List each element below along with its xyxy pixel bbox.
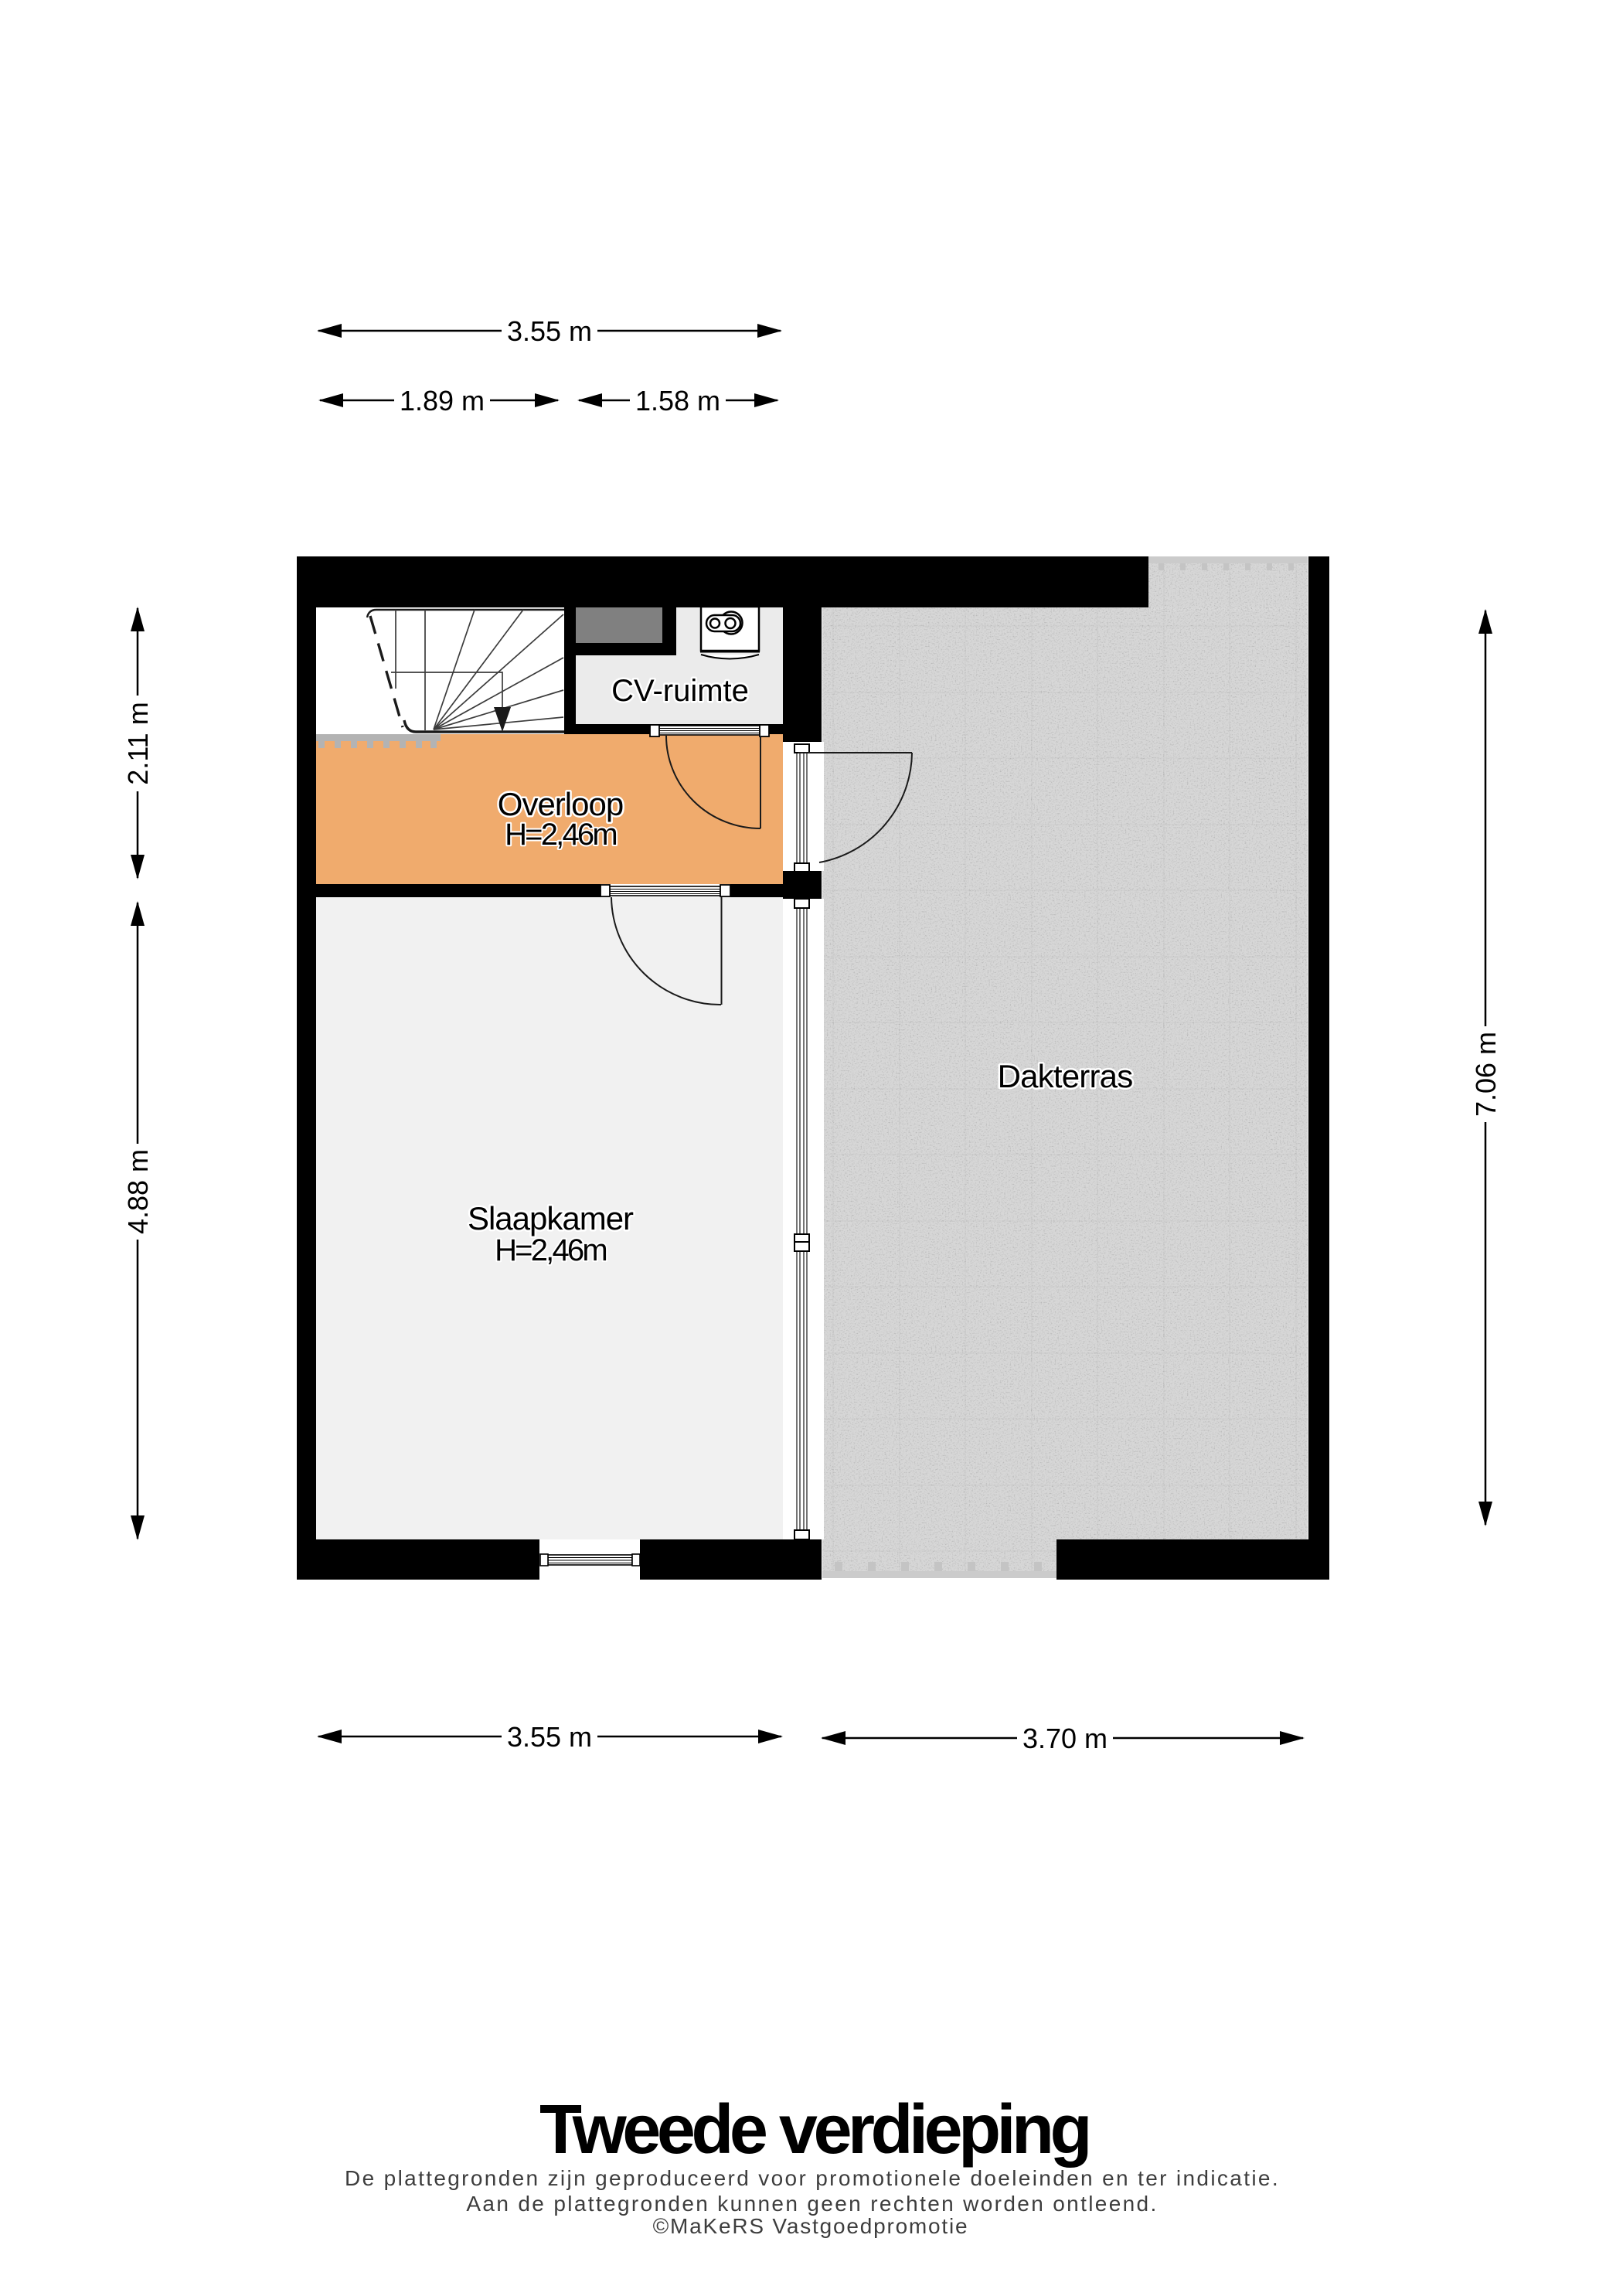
svg-text:2.11 m: 2.11 m — [122, 702, 154, 784]
svg-text:Tweede verdieping: Tweede verdieping — [539, 2091, 1088, 2168]
svg-text:4.88 m: 4.88 m — [122, 1149, 154, 1234]
svg-text:©MaKeRS Vastgoedpromotie: ©MaKeRS Vastgoedpromotie — [653, 2214, 969, 2238]
svg-text:7.06 m: 7.06 m — [1470, 1032, 1502, 1117]
svg-text:De plattegronden zijn geproduc: De plattegronden zijn geproduceerd voor … — [345, 2166, 1280, 2190]
svg-text:Slaapkamer: Slaapkamer — [468, 1200, 634, 1236]
svg-text:3.55 m: 3.55 m — [507, 315, 592, 347]
svg-text:CV-ruimte: CV-ruimte — [611, 674, 749, 708]
svg-text:3.70 m: 3.70 m — [1022, 1723, 1108, 1754]
svg-text:H=2,46m: H=2,46m — [495, 1233, 606, 1267]
svg-text:1.58 m: 1.58 m — [635, 385, 720, 417]
svg-text:H=2,46m: H=2,46m — [505, 818, 616, 852]
svg-text:Overloop: Overloop — [498, 786, 623, 822]
svg-text:Aan de plattegronden kunnen ge: Aan de plattegronden kunnen geen rechten… — [466, 2192, 1158, 2216]
svg-text:3.55 m: 3.55 m — [507, 1721, 592, 1753]
svg-text:Dakterras: Dakterras — [998, 1058, 1133, 1094]
svg-text:1.89 m: 1.89 m — [400, 385, 485, 417]
